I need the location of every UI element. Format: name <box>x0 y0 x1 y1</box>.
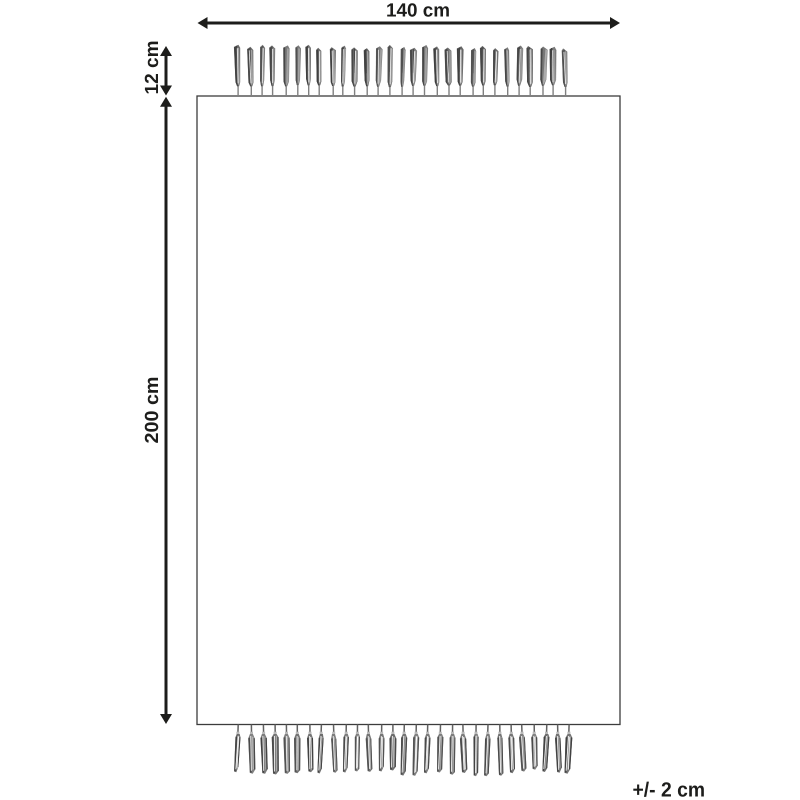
svg-text:140 cm: 140 cm <box>386 1 450 22</box>
svg-text:12 cm: 12 cm <box>142 41 163 95</box>
svg-text:+/- 2 cm: +/- 2 cm <box>633 779 706 800</box>
svg-text:200 cm: 200 cm <box>142 377 163 444</box>
